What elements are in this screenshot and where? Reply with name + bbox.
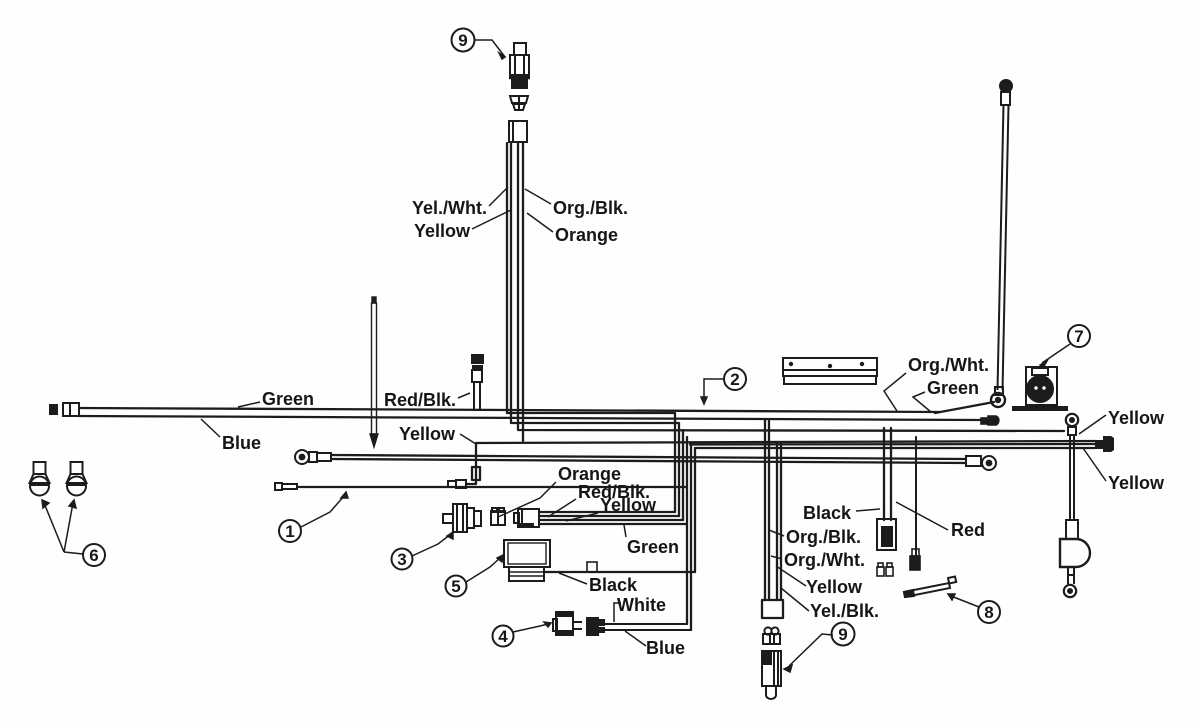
svg-text:Blue: Blue	[222, 433, 261, 453]
svg-text:Blue: Blue	[646, 638, 685, 658]
svg-text:2: 2	[730, 370, 739, 389]
svg-text:Green: Green	[627, 537, 679, 557]
svg-text:9: 9	[458, 31, 467, 50]
svg-text:7: 7	[1074, 327, 1083, 346]
svg-text:Yellow: Yellow	[806, 577, 863, 597]
svg-text:Yel./Wht.: Yel./Wht.	[412, 198, 487, 218]
svg-text:8: 8	[984, 603, 993, 622]
svg-text:6: 6	[89, 546, 98, 565]
svg-text:Red/Blk.: Red/Blk.	[384, 390, 456, 410]
svg-text:Green: Green	[927, 378, 979, 398]
svg-text:3: 3	[397, 550, 406, 569]
svg-text:Red: Red	[951, 520, 985, 540]
svg-text:Green: Green	[262, 389, 314, 409]
svg-text:Orange: Orange	[555, 225, 618, 245]
svg-text:Org./Wht.: Org./Wht.	[908, 355, 989, 375]
svg-text:Yel./Blk.: Yel./Blk.	[810, 601, 879, 621]
svg-text:4: 4	[498, 627, 508, 646]
svg-text:Black: Black	[589, 575, 638, 595]
svg-text:Yellow: Yellow	[600, 495, 657, 515]
svg-text:Org./Blk.: Org./Blk.	[553, 198, 628, 218]
svg-text:5: 5	[451, 577, 460, 596]
svg-text:1: 1	[285, 522, 294, 541]
svg-text:Yellow: Yellow	[1108, 473, 1165, 493]
svg-text:Org./Wht.: Org./Wht.	[784, 550, 865, 570]
svg-text:Yellow: Yellow	[399, 424, 456, 444]
svg-text:9: 9	[838, 625, 847, 644]
svg-text:White: White	[617, 595, 666, 615]
svg-text:Yellow: Yellow	[414, 221, 471, 241]
svg-text:Black: Black	[803, 503, 852, 523]
svg-text:Yellow: Yellow	[1108, 408, 1165, 428]
svg-text:Orange: Orange	[558, 464, 621, 484]
svg-text:Org./Blk.: Org./Blk.	[786, 527, 861, 547]
